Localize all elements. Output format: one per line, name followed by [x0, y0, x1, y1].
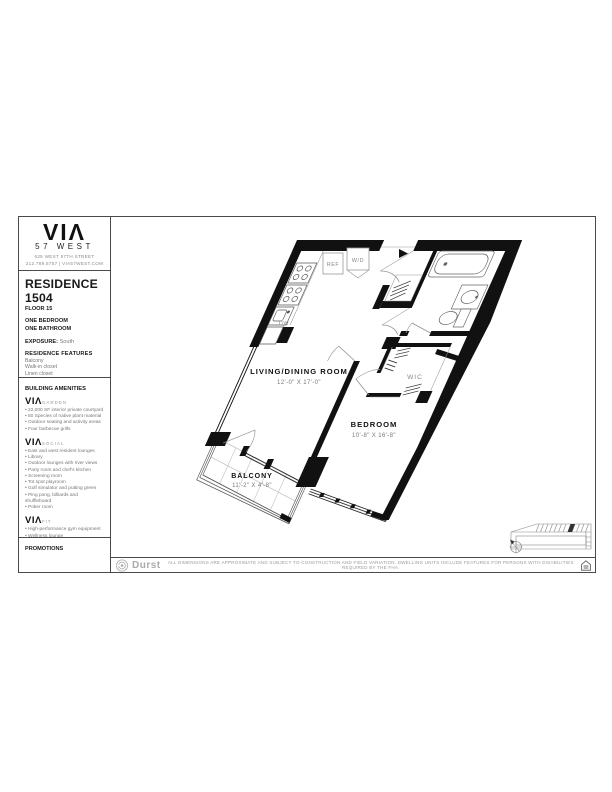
- garden-list: 22,000 SF interior private courtyard50 S…: [25, 408, 104, 433]
- wic-block: [415, 391, 432, 403]
- living-room-dim: 12'-0" X 17'-0": [277, 380, 321, 386]
- address-line-1: 625 WEST 57TH STREET: [25, 254, 104, 261]
- balcony-dim: 11'-2" X 4'-8": [232, 483, 272, 489]
- bedroom-label: BEDROOM: [351, 420, 398, 429]
- exposure-label: EXPOSURE:: [25, 339, 58, 345]
- config-bathroom: ONE BATHROOM: [25, 326, 104, 334]
- wic-hash-marks: [373, 348, 438, 395]
- via-mark: VIΛ: [25, 437, 42, 448]
- group-name-garden: GARDEN: [42, 400, 67, 405]
- fridge-box: REF: [323, 253, 343, 274]
- wic-north-wall: [388, 343, 452, 347]
- footer-disclaimer: ALL DIMENSIONS ARE APPROXIMATE AND SUBJE…: [161, 560, 581, 570]
- living-bedroom-partition: [309, 361, 360, 461]
- amenities-header: BUILDING AMENITIES: [25, 386, 104, 392]
- living-room-label: LIVING/DINING ROOM: [250, 367, 348, 376]
- via-logo: VIΛ: [25, 222, 104, 242]
- list-item: Outdoor seating and activity areas: [25, 420, 104, 426]
- linen-closet: [385, 275, 423, 301]
- amenities-block: BUILDING AMENITIES VIΛGARDEN 22,000 SF i…: [19, 378, 110, 538]
- washer-dryer-box: W/D: [347, 248, 369, 278]
- residence-floor: FLOOR 15: [25, 306, 104, 312]
- list-item: Four barbecue grills: [25, 427, 104, 433]
- floorplan-drawing: REF W/D DW LIVING/DINING ROOM 12'-0" X 1…: [111, 217, 597, 559]
- amenity-group-garden: VIΛGARDEN 22,000 SF interior private cou…: [25, 397, 104, 433]
- exposure-row: EXPOSURE: South: [25, 339, 104, 345]
- wall-top-left: [292, 240, 384, 251]
- south-wall-block: [295, 457, 328, 487]
- fit-list: High-performance gym equipmentWellness l…: [25, 527, 104, 538]
- durst-logo-icon: [115, 559, 130, 572]
- amenity-group-fit: VIΛFIT High-performance gym equipmentWel…: [25, 516, 104, 538]
- facade-post: [264, 459, 274, 469]
- logo-block: VIΛ 57 WEST 625 WEST 57TH STREET 212.789…: [19, 217, 110, 271]
- promotions-header: PROMOTIONS: [25, 546, 104, 552]
- wic-south-wall: [366, 393, 402, 397]
- residence-info-block: RESIDENCE 1504 FLOOR 15 ONE BEDROOM ONE …: [19, 271, 110, 378]
- linen-closet-hash: [388, 281, 411, 300]
- window-mullions: [311, 493, 378, 514]
- list-item: High-performance gym equipment: [25, 527, 104, 533]
- durst-wordmark: Durst: [132, 560, 161, 571]
- sheet-frame: VIΛ 57 WEST 625 WEST 57TH STREET 212.789…: [18, 216, 596, 573]
- list-item: Golf simulator and putting green: [25, 486, 104, 492]
- group-name-fit: FIT: [42, 519, 52, 524]
- bathtub-icon: [428, 251, 496, 277]
- fha-equal-housing-icon: [581, 560, 591, 571]
- floorplan-area: REF W/D DW LIVING/DINING ROOM 12'-0" X 1…: [111, 217, 597, 559]
- bathroom-south-wall-b: [429, 331, 470, 336]
- exposure-value: South: [60, 339, 75, 345]
- list-item: Ping pong, billiards and shuffleboard: [25, 493, 104, 505]
- residence-title: RESIDENCE 1504: [25, 277, 104, 305]
- wall-block-southwest: [205, 432, 231, 446]
- via-logo-sub: 57 WEST: [25, 242, 104, 251]
- features-header: RESIDENCE FEATURES: [25, 351, 104, 357]
- bathroom-south-wall-a: [399, 331, 409, 336]
- social-list: East and west resident loungesLibraryOut…: [25, 449, 104, 511]
- list-item: Outdoor lounges with river views: [25, 461, 104, 467]
- via-mark: VIΛ: [25, 515, 42, 526]
- wic-label: WIC: [407, 374, 423, 381]
- list-item: Poker room: [25, 505, 104, 511]
- unit-location-marker: [568, 524, 576, 532]
- wall-west-window: [215, 347, 257, 434]
- config-bedroom: ONE BEDROOM: [25, 318, 104, 326]
- key-plan: [510, 524, 592, 554]
- footer-bar: Durst ALL DIMENSIONS ARE APPROXIMATE AND…: [111, 557, 595, 572]
- bedroom-dim: 10'-8" X 16'-8": [352, 433, 396, 439]
- dw-label: DW: [279, 321, 289, 327]
- toilet-icon: [436, 309, 472, 327]
- sidebar: VIΛ 57 WEST 625 WEST 57TH STREET 212.789…: [19, 217, 111, 572]
- ref-label: REF: [327, 262, 340, 268]
- wd-label: W/D: [352, 258, 364, 264]
- group-name-social: SOCIAL: [42, 441, 65, 446]
- amenity-group-social: VIΛSOCIAL East and west resident lounges…: [25, 438, 104, 511]
- balcony-label: BALCONY: [231, 473, 273, 480]
- promotions-block: PROMOTIONS: [19, 538, 110, 572]
- address-line-2: 212.789.5757 | VIA57WEST.COM: [25, 261, 104, 268]
- via-mark: VIΛ: [25, 396, 42, 407]
- features-list: BalconyWalk-in closetLinen closetOptiona…: [25, 358, 104, 378]
- floorplan-sheet-page: { "logo": { "brand": "VIΛ", "sub": "57 W…: [0, 0, 612, 792]
